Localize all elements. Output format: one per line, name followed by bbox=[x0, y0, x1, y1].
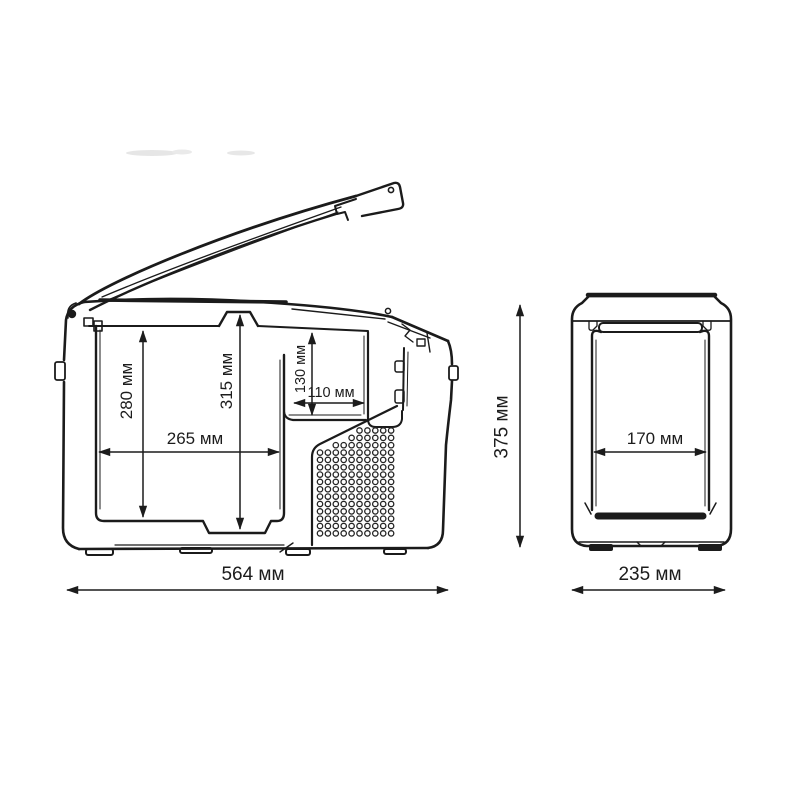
vent-hole bbox=[333, 472, 338, 477]
vent-hole bbox=[333, 509, 338, 514]
vent-hole bbox=[365, 435, 370, 440]
vent-hole bbox=[317, 509, 322, 514]
vent-hole bbox=[333, 487, 338, 492]
vent-hole bbox=[349, 450, 354, 455]
vent-hole bbox=[388, 509, 393, 514]
vent-hole bbox=[317, 487, 322, 492]
back-clip-2 bbox=[417, 339, 425, 346]
front-inner-opening bbox=[585, 331, 716, 516]
vent-hole bbox=[349, 479, 354, 484]
vent-hole bbox=[381, 523, 386, 528]
foot-1 bbox=[86, 549, 113, 555]
side-view: 280 мм 315 мм 130 мм 110 мм 265 мм 564 м… bbox=[55, 183, 458, 590]
vent-hole bbox=[349, 531, 354, 536]
vent-hole bbox=[381, 494, 386, 499]
vent-hole bbox=[317, 494, 322, 499]
vent-hole bbox=[349, 457, 354, 462]
vent-hole bbox=[325, 523, 330, 528]
vent-hole bbox=[388, 435, 393, 440]
vent-hole bbox=[357, 509, 362, 514]
dim-label-step-width: 110 мм bbox=[307, 385, 354, 401]
vent-hole bbox=[325, 457, 330, 462]
vent-hole bbox=[341, 523, 346, 528]
vent-hole bbox=[373, 465, 378, 470]
lid-outer-edge bbox=[79, 196, 356, 304]
vent-hole bbox=[381, 450, 386, 455]
vent-hole bbox=[349, 501, 354, 506]
vent-hole bbox=[357, 435, 362, 440]
vent-hole bbox=[349, 523, 354, 528]
vent-hole bbox=[373, 516, 378, 521]
vent-hole bbox=[373, 457, 378, 462]
vent-hole bbox=[349, 435, 354, 440]
vent-hole bbox=[357, 501, 362, 506]
vent-hole bbox=[388, 523, 393, 528]
front-foot-left bbox=[589, 544, 613, 551]
rim-underside bbox=[89, 326, 368, 331]
vent-hole bbox=[365, 494, 370, 499]
vent-hole bbox=[349, 516, 354, 521]
vent-hole bbox=[333, 457, 338, 462]
dim-label-overall-length: 564 мм bbox=[221, 564, 284, 585]
dim-label-inner-width: 170 мм bbox=[627, 429, 683, 448]
left-latch bbox=[55, 362, 65, 380]
vent-hole bbox=[365, 472, 370, 477]
vent-hole bbox=[381, 479, 386, 484]
vent-hole bbox=[373, 450, 378, 455]
vent-hole bbox=[317, 450, 322, 455]
vent-hole bbox=[388, 428, 393, 433]
technical-drawing: 280 мм 315 мм 130 мм 110 мм 265 мм 564 м… bbox=[0, 0, 800, 800]
vent-hole bbox=[381, 435, 386, 440]
vent-hole bbox=[341, 494, 346, 499]
vent-hole bbox=[365, 457, 370, 462]
vent-hole bbox=[357, 516, 362, 521]
lid-seal-line-1 bbox=[102, 207, 341, 297]
lid-open bbox=[68, 183, 403, 318]
vent-hole bbox=[381, 509, 386, 514]
dim-label-inner-depth-main: 280 мм bbox=[117, 363, 136, 419]
vent-hole bbox=[365, 428, 370, 433]
vent-hole bbox=[373, 523, 378, 528]
vent-hole bbox=[381, 428, 386, 433]
vent-hole bbox=[373, 443, 378, 448]
vent-hole bbox=[317, 523, 322, 528]
vent-hole bbox=[357, 487, 362, 492]
vent-hole bbox=[388, 465, 393, 470]
vent-hole bbox=[388, 531, 393, 536]
vent-hole bbox=[341, 531, 346, 536]
vent-hole bbox=[357, 531, 362, 536]
vent-hole bbox=[333, 523, 338, 528]
vent-hole bbox=[333, 479, 338, 484]
vent-hole bbox=[317, 472, 322, 477]
front-inner-foot-left bbox=[585, 503, 591, 514]
vent-hole bbox=[357, 465, 362, 470]
vent-hole bbox=[333, 494, 338, 499]
vent-hole bbox=[373, 501, 378, 506]
vent-hole bbox=[317, 531, 322, 536]
vent-hole bbox=[357, 457, 362, 462]
vent-hole bbox=[341, 516, 346, 521]
front-hinge-bar bbox=[599, 323, 702, 332]
vent-hole bbox=[341, 479, 346, 484]
vent-hole bbox=[325, 494, 330, 499]
vent-hole bbox=[333, 531, 338, 536]
vent-hole bbox=[341, 472, 346, 477]
vent-hole bbox=[388, 479, 393, 484]
vent-hole bbox=[381, 487, 386, 492]
front-seam-notch-right bbox=[703, 321, 711, 330]
back-hinge-pin bbox=[385, 308, 390, 313]
vent-hole bbox=[365, 450, 370, 455]
vent-hole bbox=[317, 465, 322, 470]
vent-hole bbox=[357, 494, 362, 499]
vent-hole bbox=[373, 487, 378, 492]
vent-hole bbox=[357, 523, 362, 528]
vent-hole bbox=[365, 531, 370, 536]
vent-hole bbox=[381, 516, 386, 521]
vent-hole bbox=[333, 501, 338, 506]
vent-hole bbox=[381, 443, 386, 448]
rim-bump bbox=[219, 312, 258, 326]
vent-hole bbox=[333, 443, 338, 448]
vent-hole bbox=[325, 479, 330, 484]
vent-hole bbox=[333, 516, 338, 521]
left-edge bbox=[63, 302, 84, 549]
vent-hole bbox=[373, 428, 378, 433]
vent-hole bbox=[365, 465, 370, 470]
vent-hole bbox=[357, 443, 362, 448]
vent-hole bbox=[349, 494, 354, 499]
compressor-front-wall-inner bbox=[407, 352, 408, 406]
vent-hole bbox=[341, 509, 346, 514]
vent-hole bbox=[357, 450, 362, 455]
vent-hole bbox=[325, 531, 330, 536]
vent-hole bbox=[381, 501, 386, 506]
foot-4 bbox=[384, 549, 406, 554]
foot-3 bbox=[286, 549, 310, 555]
front-inner-foot-right bbox=[710, 503, 716, 514]
right-side-tab bbox=[449, 366, 458, 380]
vent-hole bbox=[317, 457, 322, 462]
vent-hole bbox=[317, 501, 322, 506]
vent-hole bbox=[388, 487, 393, 492]
dim-label-inner-length: 265 мм bbox=[167, 429, 223, 448]
vent-hole bbox=[373, 479, 378, 484]
vent-hole bbox=[388, 457, 393, 462]
vent-hole bbox=[373, 494, 378, 499]
vent-hole bbox=[317, 516, 322, 521]
vent-hole bbox=[365, 443, 370, 448]
vent-hole bbox=[373, 472, 378, 477]
vent-hole bbox=[325, 465, 330, 470]
vent-hole bbox=[349, 509, 354, 514]
vent-hole bbox=[365, 523, 370, 528]
vent-hole bbox=[341, 487, 346, 492]
vent-hole bbox=[365, 479, 370, 484]
vent-hole bbox=[388, 501, 393, 506]
front-view: 375 мм 170 мм 235 мм bbox=[492, 295, 731, 590]
front-base bbox=[579, 542, 724, 551]
vent-hole bbox=[365, 516, 370, 521]
vent-hole bbox=[333, 450, 338, 455]
lid-pin-hole bbox=[388, 187, 393, 192]
vent-hole bbox=[357, 479, 362, 484]
vent-hole bbox=[373, 509, 378, 514]
vent-hole bbox=[373, 435, 378, 440]
vent-hole bbox=[381, 531, 386, 536]
vent-hole bbox=[341, 457, 346, 462]
vent-hole bbox=[381, 457, 386, 462]
vent-hole bbox=[388, 443, 393, 448]
vent-hole bbox=[349, 487, 354, 492]
vent-hole bbox=[325, 509, 330, 514]
hinge-bracket-1 bbox=[84, 318, 93, 326]
vent-hole bbox=[325, 487, 330, 492]
vent-hole bbox=[325, 501, 330, 506]
front-foot-right bbox=[698, 544, 722, 551]
vent-hole bbox=[388, 494, 393, 499]
foot-2 bbox=[180, 548, 212, 553]
vent-hole bbox=[381, 472, 386, 477]
rim-seam-thick bbox=[100, 300, 286, 302]
lid-underside bbox=[90, 214, 336, 310]
vent-hole bbox=[365, 501, 370, 506]
vent-hole bbox=[388, 516, 393, 521]
vent-hole bbox=[388, 472, 393, 477]
vent-hole bbox=[317, 479, 322, 484]
vent-hole bbox=[365, 509, 370, 514]
dim-label-overall-height: 375 мм bbox=[492, 395, 513, 458]
vent-hole bbox=[341, 450, 346, 455]
back-detail-line bbox=[427, 333, 430, 352]
vent-hole bbox=[325, 472, 330, 477]
drawing-page: 280 мм 315 мм 130 мм 110 мм 265 мм 564 м… bbox=[0, 0, 800, 800]
vent-hole bbox=[341, 465, 346, 470]
vent-hole bbox=[325, 516, 330, 521]
vent-hole bbox=[341, 443, 346, 448]
vent-hole bbox=[365, 487, 370, 492]
vent-hole bbox=[349, 472, 354, 477]
vent-hole bbox=[388, 450, 393, 455]
vent-hole bbox=[333, 465, 338, 470]
vent-hole bbox=[341, 501, 346, 506]
front-seam-notch-left bbox=[589, 321, 597, 330]
vent-hole bbox=[357, 472, 362, 477]
vent-hole bbox=[349, 465, 354, 470]
vent-hole bbox=[381, 465, 386, 470]
vent-hole bbox=[349, 443, 354, 448]
vent-grille bbox=[317, 428, 394, 536]
bottom-edge bbox=[79, 548, 428, 549]
step-shelf bbox=[284, 412, 366, 420]
lid-end-cap bbox=[356, 183, 403, 216]
dim-label-inner-depth-total: 315 мм bbox=[217, 353, 236, 409]
dim-label-overall-width: 235 мм bbox=[618, 564, 681, 585]
vent-hole bbox=[325, 450, 330, 455]
vent-hole bbox=[357, 428, 362, 433]
vent-hole bbox=[373, 531, 378, 536]
faint-smudges bbox=[126, 150, 255, 157]
back-slope bbox=[392, 317, 448, 341]
